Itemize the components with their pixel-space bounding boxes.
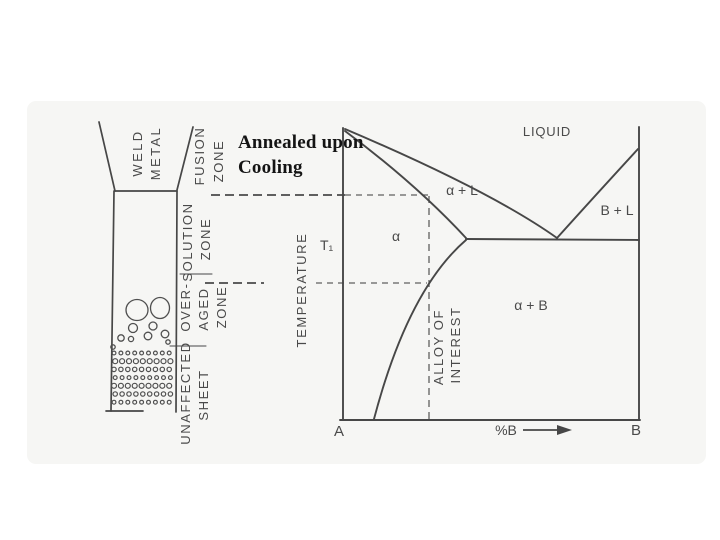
- eutectic-line: [466, 239, 639, 240]
- unaffected-sheet-label-line1: UNAFFECTED: [178, 341, 193, 444]
- fusion-zone-label-line1: FUSION: [192, 127, 207, 186]
- solution-zone-label-line1: SOLUTION: [180, 202, 195, 281]
- alloy-of-interest-label-line2: INTEREST: [448, 306, 463, 383]
- overaged-zone-label-line1: OVER-: [178, 282, 193, 331]
- slide-title: Annealed upon Cooling: [238, 130, 364, 180]
- unaffected-sheet-label-line2: SHEET: [196, 369, 211, 420]
- alpha-plus-liquid-label: α + L: [446, 182, 478, 198]
- overaged-zone-label-line2: AGED: [196, 287, 211, 330]
- weld-metal-label-line2: METAL: [148, 126, 163, 180]
- alpha-plus-b-label: α + B: [514, 297, 547, 313]
- temperature-axis-label: TEMPERATURE: [294, 233, 309, 348]
- axis-label-a: A: [334, 423, 344, 440]
- fusion-zone-label-line2: ZONE: [211, 140, 226, 183]
- slide-title-line1: Annealed upon: [238, 130, 364, 155]
- b-plus-liquid-label: B + L: [600, 202, 633, 218]
- liquid-region-label: LIQUID: [523, 124, 571, 139]
- slide: LIQUID α + L B + L α α + B T₁ TEMPERATUR…: [0, 0, 720, 540]
- overaged-zone-label-line3: ZONE: [214, 286, 229, 329]
- sheet-right-line: [176, 191, 177, 412]
- alloy-of-interest-label-line1: ALLOY OF: [431, 309, 446, 385]
- scan-background: [27, 101, 706, 464]
- alpha-region-label: α: [392, 228, 400, 244]
- phase-diagram-figure: LIQUID α + L B + L α α + B T₁ TEMPERATUR…: [0, 0, 720, 540]
- solution-zone-label-line2: ZONE: [198, 218, 213, 261]
- slide-title-line2: Cooling: [238, 155, 364, 180]
- axis-label-pct-b: %B: [495, 422, 517, 438]
- weld-metal-label-line1: WELD: [130, 129, 145, 176]
- t1-label: T₁: [320, 237, 334, 253]
- axis-label-b: B: [631, 422, 641, 439]
